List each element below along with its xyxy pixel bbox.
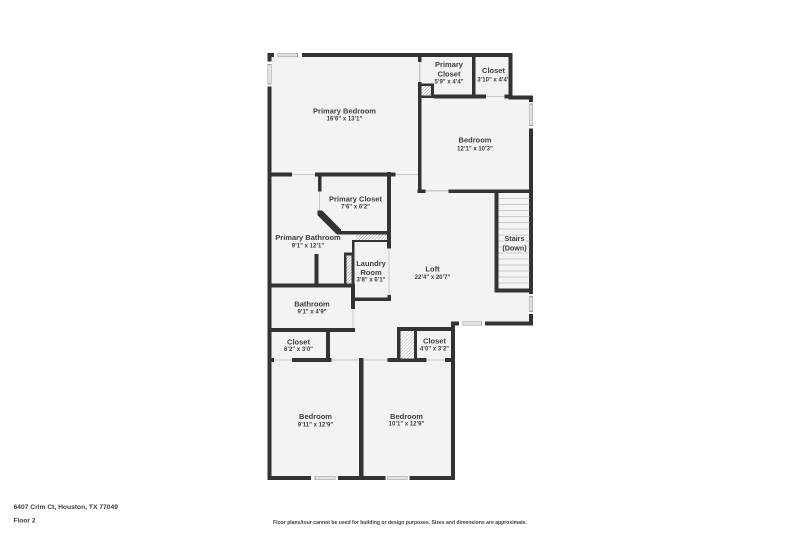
svg-text:10’1" x 12’9": 10’1" x 12’9" xyxy=(389,422,425,428)
svg-text:6407 Crim Ct, Houston, TX 7704: 6407 Crim Ct, Houston, TX 77049 xyxy=(14,504,119,511)
svg-text:Bedroom: Bedroom xyxy=(299,412,332,421)
svg-text:6’2" x 3’0": 6’2" x 3’0" xyxy=(284,347,313,353)
svg-text:Primary Bathroom: Primary Bathroom xyxy=(275,233,341,242)
svg-text:5’9" x 4’4": 5’9" x 4’4" xyxy=(434,80,463,86)
svg-text:Primary Closet: Primary Closet xyxy=(329,195,382,204)
svg-text:Closet: Closet xyxy=(287,338,310,347)
svg-text:9’1" x 4’9": 9’1" x 4’9" xyxy=(297,310,326,316)
svg-text:Closet: Closet xyxy=(438,70,461,79)
svg-text:Floor 2: Floor 2 xyxy=(14,518,36,525)
svg-text:Loft: Loft xyxy=(425,265,440,274)
svg-text:Closet: Closet xyxy=(482,66,505,75)
svg-text:Bathroom: Bathroom xyxy=(294,300,330,309)
svg-text:4’0" x 3’2": 4’0" x 3’2" xyxy=(420,347,449,353)
svg-text:9’1" x 12’1": 9’1" x 12’1" xyxy=(292,243,325,249)
svg-text:Closet: Closet xyxy=(423,337,446,346)
svg-text:3’10" x 4’4": 3’10" x 4’4" xyxy=(477,78,510,84)
svg-text:Bedroom: Bedroom xyxy=(390,412,423,421)
svg-text:Primary Bedroom: Primary Bedroom xyxy=(313,107,376,116)
svg-text:12’1" x 10’3": 12’1" x 10’3" xyxy=(457,147,493,153)
svg-text:22’4" x 20’7": 22’4" x 20’7" xyxy=(415,275,451,281)
svg-text:Laundry: Laundry xyxy=(356,259,386,268)
svg-text:Floor plans/tour cannot be use: Floor plans/tour cannot be used for buil… xyxy=(273,520,527,526)
svg-text:Stairs: Stairs xyxy=(505,234,525,243)
svg-text:9’11" x 12’9": 9’11" x 12’9" xyxy=(298,422,334,428)
svg-text:3’8" x 6’1": 3’8" x 6’1" xyxy=(356,278,385,284)
svg-text:Room: Room xyxy=(360,268,382,277)
svg-text:16’6" x 13’1": 16’6" x 13’1" xyxy=(327,117,363,123)
svg-text:(Down): (Down) xyxy=(502,244,527,253)
svg-text:Primary: Primary xyxy=(435,60,464,69)
svg-text:7’6" x 6’2": 7’6" x 6’2" xyxy=(341,205,370,211)
svg-text:Bedroom: Bedroom xyxy=(459,136,492,145)
